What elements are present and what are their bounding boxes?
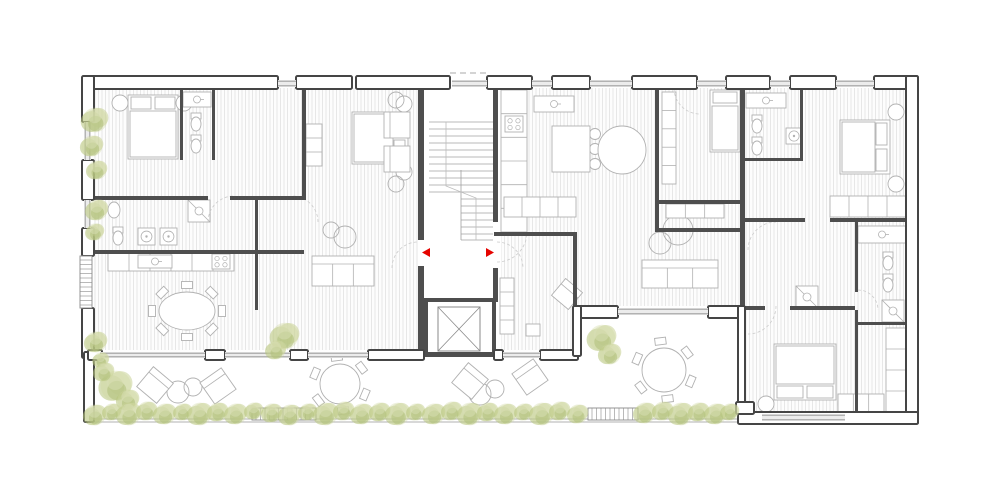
interior-wall bbox=[655, 88, 659, 232]
fixture-washer bbox=[786, 128, 802, 144]
interior-wall bbox=[302, 88, 306, 196]
interior-wall bbox=[790, 306, 855, 310]
interior-wall bbox=[494, 232, 577, 236]
exterior-wall-segment bbox=[906, 76, 918, 424]
chair bbox=[149, 306, 156, 317]
interior-wall bbox=[745, 306, 765, 310]
chair bbox=[632, 352, 643, 365]
entry-markers bbox=[422, 248, 494, 257]
fixture-stove bbox=[212, 254, 230, 269]
chair bbox=[182, 334, 193, 341]
chair bbox=[635, 381, 647, 394]
table-top bbox=[642, 348, 686, 392]
chair bbox=[681, 346, 693, 359]
pillow bbox=[155, 97, 175, 109]
interior-wall bbox=[493, 88, 498, 222]
fixture-washer bbox=[138, 228, 155, 245]
exterior-wall-segment bbox=[290, 350, 308, 360]
furniture-cabinet bbox=[838, 394, 884, 413]
furniture-side-tables bbox=[167, 378, 202, 403]
tree bbox=[549, 402, 570, 421]
fixture-toilet bbox=[883, 274, 893, 292]
fixture-toilet bbox=[752, 115, 762, 133]
furniture-round-table bbox=[598, 126, 646, 174]
interior-wall bbox=[212, 88, 215, 160]
floor-plan-svg bbox=[0, 0, 1000, 500]
interior-wall bbox=[573, 236, 577, 306]
exterior-wall-segment bbox=[205, 350, 225, 360]
fixture-shower bbox=[188, 200, 210, 222]
nightstand bbox=[758, 396, 774, 412]
fixture-toilet bbox=[191, 135, 201, 153]
interior-wall bbox=[424, 352, 496, 357]
interior-wall bbox=[855, 222, 858, 292]
fixture-sink bbox=[534, 96, 574, 112]
mattress bbox=[712, 106, 738, 150]
nightstand bbox=[888, 104, 904, 120]
nightstand bbox=[888, 176, 904, 192]
fixture-toilet bbox=[752, 137, 762, 155]
interior-wall bbox=[230, 196, 306, 200]
exterior-wall-segment bbox=[738, 306, 745, 412]
mattress bbox=[776, 346, 834, 384]
interior-wall bbox=[418, 266, 424, 352]
fixture-toilet bbox=[113, 227, 123, 245]
elevator bbox=[438, 307, 480, 351]
interior-wall bbox=[492, 298, 496, 356]
fixture-sink bbox=[138, 255, 172, 268]
furniture-cabinet bbox=[526, 324, 540, 336]
exterior-wall-segment bbox=[578, 306, 618, 318]
furniture-round-table bbox=[632, 337, 696, 403]
interior-wall bbox=[659, 200, 740, 204]
chair bbox=[360, 388, 371, 401]
interior-wall bbox=[745, 218, 805, 222]
furniture-lounge-chair bbox=[137, 367, 174, 404]
interior-wall bbox=[94, 250, 304, 254]
furniture-cabinet bbox=[306, 124, 322, 166]
pillow bbox=[876, 123, 887, 145]
fixture-washer bbox=[160, 228, 177, 245]
interior-wall bbox=[655, 228, 745, 232]
furniture-sofa bbox=[312, 256, 374, 286]
furniture-cabinet bbox=[500, 278, 514, 334]
furniture-armchair bbox=[384, 112, 410, 138]
table-top bbox=[159, 292, 215, 330]
interior-wall bbox=[855, 310, 858, 412]
mattress bbox=[842, 122, 875, 172]
railing bbox=[588, 408, 638, 420]
exterior-wall-segment bbox=[632, 76, 697, 89]
furniture-table bbox=[552, 126, 601, 172]
fixture-sink bbox=[746, 93, 786, 108]
exterior-wall-segment bbox=[296, 76, 352, 89]
chair bbox=[310, 367, 321, 380]
chair bbox=[590, 129, 601, 140]
interior-wall bbox=[493, 268, 498, 302]
pillow bbox=[777, 386, 803, 398]
pillow bbox=[876, 149, 887, 171]
fixture-toilet bbox=[883, 252, 893, 270]
chair bbox=[219, 306, 226, 317]
nightstand bbox=[112, 95, 128, 111]
furniture-lounge-chair bbox=[512, 359, 548, 395]
pillow bbox=[131, 97, 151, 109]
exterior-wall-segment bbox=[356, 76, 450, 89]
interior-wall bbox=[255, 253, 258, 310]
fixture-sink bbox=[858, 226, 906, 243]
furniture-cabinet bbox=[830, 196, 906, 217]
exterior-wall-segment bbox=[368, 350, 424, 360]
chair bbox=[655, 337, 667, 345]
exterior-wall-segment bbox=[573, 306, 581, 356]
exterior-wall-segment bbox=[487, 76, 532, 89]
fixture-stove bbox=[505, 116, 523, 132]
chair bbox=[355, 361, 367, 374]
exterior-wall-segment bbox=[552, 76, 590, 89]
fixture-basin bbox=[108, 202, 120, 218]
furniture-cabinet bbox=[666, 204, 724, 218]
interior-wall bbox=[418, 88, 424, 240]
interior-wall bbox=[830, 218, 912, 222]
interior-wall bbox=[740, 88, 745, 306]
entry-arrow-marker bbox=[486, 248, 494, 257]
fixture-sink bbox=[183, 92, 211, 107]
interior-wall bbox=[180, 88, 183, 160]
table-top bbox=[598, 126, 646, 174]
exterior-wall-segment bbox=[494, 350, 503, 360]
furniture-cabinet bbox=[662, 92, 676, 184]
interior-wall bbox=[855, 322, 912, 325]
interior-wall bbox=[745, 158, 803, 161]
interior-wall bbox=[424, 298, 428, 356]
mattress bbox=[130, 111, 176, 157]
floor-plan-canvas bbox=[0, 0, 1000, 500]
chair bbox=[685, 375, 696, 388]
interior-wall bbox=[255, 196, 258, 250]
fixture-shower bbox=[882, 300, 904, 322]
chair bbox=[182, 282, 193, 289]
fixture-shower bbox=[796, 286, 818, 308]
table-top bbox=[320, 364, 360, 404]
fixture-toilet bbox=[191, 113, 201, 131]
exterior-wall-segment bbox=[88, 76, 278, 89]
entry-arrow-marker bbox=[422, 248, 430, 257]
table-top bbox=[552, 126, 590, 172]
furniture-sofa bbox=[642, 260, 718, 288]
exterior-wall-segment bbox=[726, 76, 770, 89]
furniture-lounge-chair bbox=[200, 368, 236, 404]
furniture-cabinet bbox=[504, 197, 576, 217]
tree bbox=[567, 405, 588, 424]
staircase bbox=[429, 122, 493, 240]
pillow bbox=[807, 386, 833, 398]
furniture-armchair bbox=[384, 146, 410, 172]
interior-wall bbox=[424, 298, 496, 302]
interior-wall bbox=[94, 196, 208, 200]
furniture-bed bbox=[710, 90, 740, 152]
pillow bbox=[713, 92, 737, 103]
interior-wall bbox=[800, 88, 803, 158]
furniture-lounge-chair bbox=[452, 363, 489, 400]
exterior-wall-segment bbox=[790, 76, 836, 89]
chair bbox=[590, 159, 601, 170]
